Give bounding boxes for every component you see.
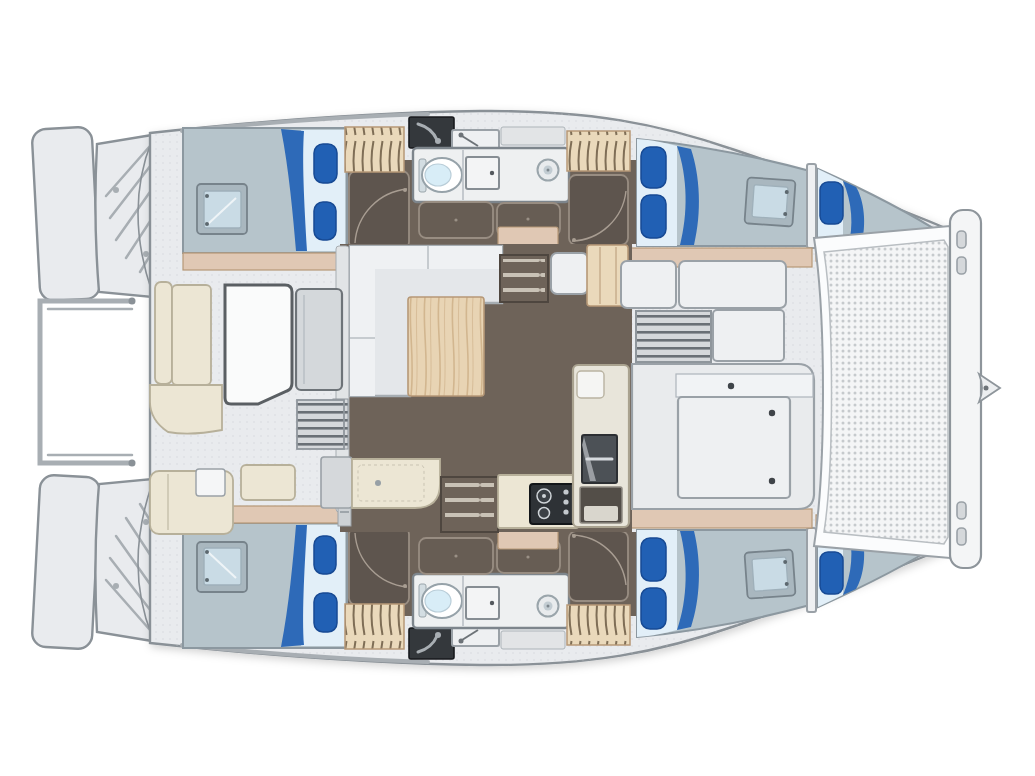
sofa-backrest (350, 246, 502, 269)
companion-slats (567, 131, 630, 171)
side-shelf (501, 127, 565, 145)
shower-wand-head (459, 133, 464, 138)
aft-cabin-port (183, 128, 347, 270)
pillow (820, 182, 843, 224)
rail-post (129, 298, 136, 305)
berth-divider (807, 164, 816, 248)
saloon (321, 244, 632, 532)
beam-fitting (957, 528, 966, 545)
cleat-icon (113, 187, 119, 193)
davit-rail-bar (40, 301, 132, 463)
cabin-trim-teak (183, 253, 347, 270)
rail-post (129, 460, 136, 467)
cockpit-corner-seat (150, 385, 222, 434)
stove-knob (563, 489, 568, 494)
cabinet-knob (526, 217, 529, 220)
cockpit-bench-back (155, 282, 172, 384)
vent-grille (297, 400, 344, 449)
stove (530, 484, 575, 524)
pillow (314, 144, 337, 183)
door-hinge (403, 188, 407, 192)
beam-fitting (957, 231, 966, 248)
deck-hatch (744, 177, 795, 226)
bathroom-port (413, 148, 569, 202)
beam-fitting (957, 257, 966, 274)
sofa-backrest (350, 269, 375, 396)
wardrobe (349, 171, 409, 249)
locker-header (676, 374, 813, 397)
sink-drain (375, 480, 381, 486)
shower-door-handle (490, 171, 494, 175)
swim-platform (32, 127, 101, 302)
companion-slats (345, 127, 404, 172)
cockpit-side-bench (296, 289, 342, 390)
bowsprit-fitting (979, 374, 1000, 402)
deck-locker (679, 261, 786, 308)
cleat-icon (143, 251, 149, 257)
stove-knob (563, 499, 568, 504)
burner (539, 508, 550, 519)
cockpit-bench-seat (172, 285, 211, 385)
bow-trampoline (824, 240, 948, 544)
hatch-screw (728, 383, 734, 389)
deck-locker (713, 310, 784, 361)
locker-shelf (584, 506, 618, 521)
transom (95, 135, 152, 297)
stove-knob (563, 509, 568, 514)
hatch-screw (205, 194, 209, 198)
floor-plan-canvas (0, 0, 1035, 776)
cockpit-box (196, 469, 225, 496)
nav-seat (551, 253, 588, 294)
faucet-base (435, 138, 441, 144)
icebox (577, 371, 604, 398)
shower-drain-dot (547, 169, 550, 172)
catamaran-floor-plan (0, 0, 1035, 776)
bow-area (814, 210, 1000, 568)
davit-rail (40, 298, 136, 467)
aft-cockpit-table (225, 285, 292, 404)
deck-locker (621, 261, 676, 308)
burner-center (542, 494, 546, 498)
deck-hatch-glass (752, 185, 788, 219)
toilet-bowl (425, 164, 451, 186)
hatch-screw (205, 222, 209, 226)
pillow (641, 147, 666, 188)
hatch-screw (769, 410, 775, 416)
cockpit-side-table (241, 465, 295, 500)
step-treads (503, 259, 545, 299)
pillow (314, 202, 336, 240)
hatch-screw (769, 478, 775, 484)
step-treads (445, 482, 494, 528)
foredeck (621, 261, 814, 509)
beam-fitting (957, 502, 966, 519)
galley-end-cabinet (321, 457, 352, 508)
bowsprit-pin (984, 386, 989, 391)
cabinet-knob (454, 218, 457, 221)
wardrobe (569, 175, 628, 245)
pillow (641, 195, 666, 238)
saloon-table (408, 297, 484, 396)
door-hinge (572, 238, 576, 242)
deck-vent-grille (636, 311, 711, 362)
